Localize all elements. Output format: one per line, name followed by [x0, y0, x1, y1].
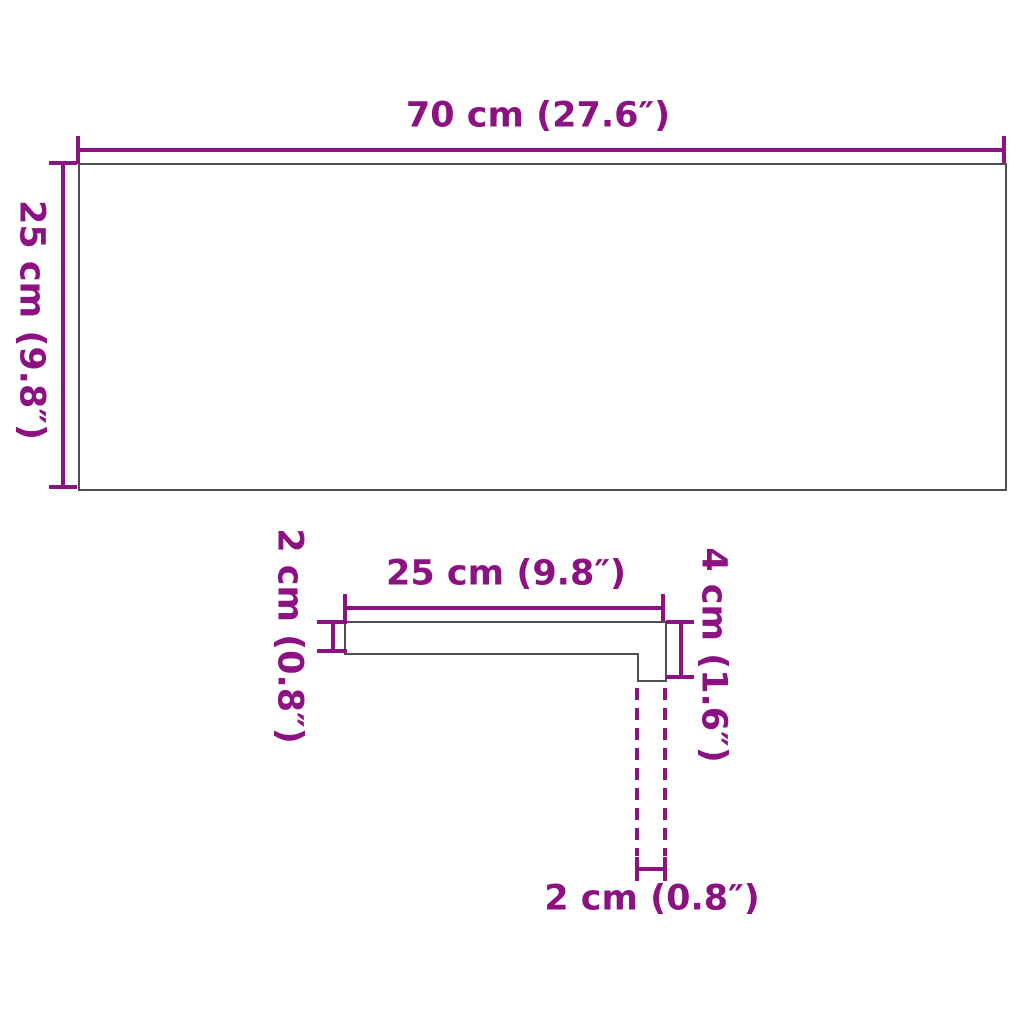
profile-thickness-label: 2 cm (0.8″)	[272, 528, 307, 744]
profile-depth-dimension-line	[345, 606, 665, 610]
top-height-tick-top	[49, 161, 77, 165]
board-top-view-outline	[78, 163, 1007, 491]
top-width-tick-right	[1002, 136, 1006, 164]
profile-thickness-tick-top	[317, 620, 347, 624]
front-edge-height-tick-top	[666, 620, 694, 624]
top-width-dimension-line	[78, 148, 1005, 152]
profile-outline-svg	[340, 616, 676, 688]
profile-thickness-tick-bottom	[317, 649, 347, 653]
product-dimension-diagram: 70 cm (27.6″) 25 cm (9.8″) 25 cm (9.8″) …	[0, 0, 1024, 1024]
profile-depth-label: 25 cm (9.8″)	[386, 557, 626, 592]
extension-dash-left	[635, 688, 639, 856]
front-edge-height-dimension-line	[679, 622, 683, 679]
top-width-label: 70 cm (27.6″)	[406, 99, 670, 134]
front-edge-thickness-label: 2 cm (0.8″)	[544, 882, 760, 917]
top-height-tick-bottom	[49, 485, 77, 489]
front-edge-height-tick-bottom	[666, 675, 694, 679]
top-height-label: 25 cm (9.8″)	[14, 200, 49, 440]
top-height-dimension-line	[61, 163, 65, 489]
profile-outline-shape	[345, 622, 666, 681]
front-edge-height-label: 4 cm (1.6″)	[696, 547, 731, 763]
extension-dash-right	[663, 688, 667, 856]
top-width-tick-left	[76, 136, 80, 164]
front-edge-thickness-dimension-line	[635, 867, 667, 871]
